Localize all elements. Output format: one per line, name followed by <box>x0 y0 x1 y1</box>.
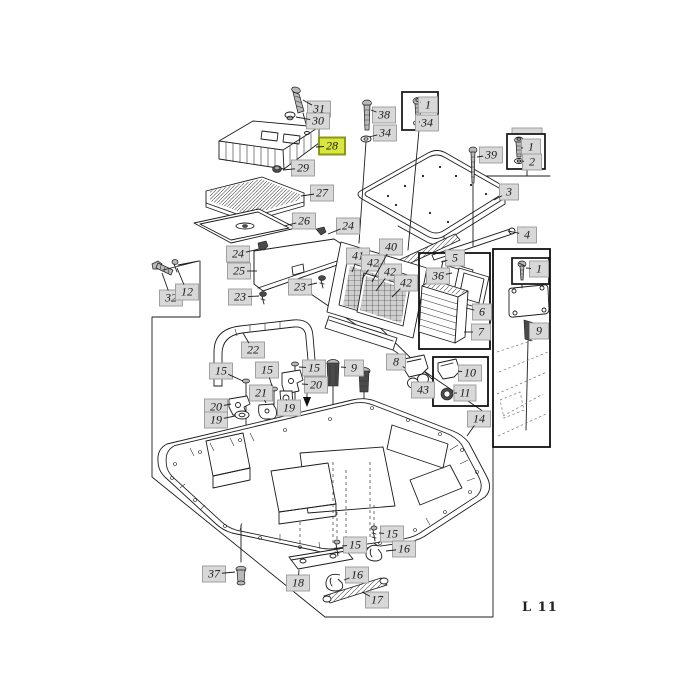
callout-23[interactable]: 23 <box>228 289 252 306</box>
callout-1[interactable]: 1 <box>418 97 438 114</box>
callout-10[interactable]: 10 <box>458 365 482 382</box>
callout-labels-layer: 3130282927262438341343912342425232332124… <box>0 0 700 700</box>
callout-8[interactable]: 8 <box>386 354 406 371</box>
callout-1[interactable]: 1 <box>529 261 549 278</box>
callout-23[interactable]: 23 <box>288 279 312 296</box>
callout-12[interactable]: 12 <box>175 284 199 301</box>
callout-30[interactable]: 30 <box>306 113 330 130</box>
callout-2[interactable]: 2 <box>522 154 542 171</box>
callout-20[interactable]: 20 <box>304 377 328 394</box>
callout-37[interactable]: 37 <box>202 566 226 583</box>
callout-22[interactable]: 22 <box>241 342 265 359</box>
callout-38[interactable]: 38 <box>372 107 396 124</box>
callout-40[interactable]: 40 <box>379 239 403 256</box>
callout-6[interactable]: 6 <box>472 304 492 321</box>
callout-14[interactable]: 14 <box>467 411 491 428</box>
callout-7[interactable]: 7 <box>471 324 491 341</box>
callout-39[interactable]: 39 <box>479 147 503 164</box>
callout-34[interactable]: 34 <box>373 125 397 142</box>
callout-15[interactable]: 15 <box>302 360 326 377</box>
callout-42[interactable]: 42 <box>394 275 418 292</box>
callout-3[interactable]: 3 <box>499 184 519 201</box>
callout-18[interactable]: 18 <box>286 575 310 592</box>
callout-29[interactable]: 29 <box>291 160 315 177</box>
callout-16[interactable]: 16 <box>345 567 369 584</box>
callout-27[interactable]: 27 <box>310 185 334 202</box>
callout-43[interactable]: 43 <box>411 382 435 399</box>
callout-34[interactable]: 34 <box>415 115 439 132</box>
callout-9[interactable]: 9 <box>344 360 364 377</box>
callout-9[interactable]: 9 <box>529 323 549 340</box>
callout-21[interactable]: 21 <box>249 385 273 402</box>
callout-5[interactable]: 5 <box>445 250 465 267</box>
callout-4[interactable]: 4 <box>517 227 537 244</box>
parts-diagram-page: 3130282927262438341343912342425232332124… <box>0 0 700 700</box>
callout-36[interactable]: 36 <box>426 268 450 285</box>
callout-19[interactable]: 19 <box>277 400 301 417</box>
callout-15[interactable]: 15 <box>209 363 233 380</box>
callout-15[interactable]: 15 <box>343 537 367 554</box>
callout-25[interactable]: 25 <box>227 263 251 280</box>
callout-16[interactable]: 16 <box>392 541 416 558</box>
callout-24[interactable]: 24 <box>226 246 250 263</box>
callout-28-highlighted[interactable]: 28 <box>318 137 346 156</box>
callout-26[interactable]: 26 <box>292 213 316 230</box>
callout-19[interactable]: 19 <box>204 412 228 429</box>
callout-24[interactable]: 24 <box>336 218 360 235</box>
callout-17[interactable]: 17 <box>365 592 389 609</box>
callout-11[interactable]: 11 <box>453 385 476 402</box>
callout-15[interactable]: 15 <box>255 362 279 379</box>
